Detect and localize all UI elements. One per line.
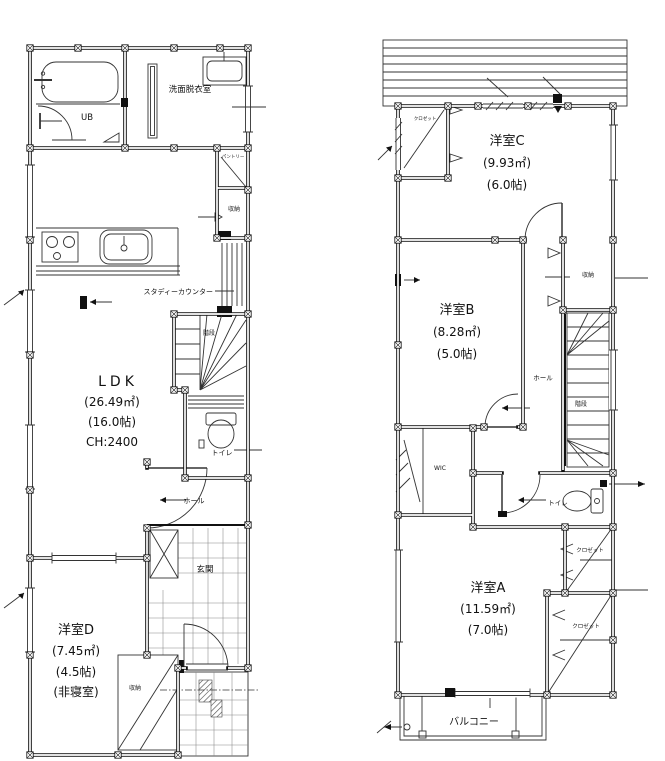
shoe-cabinet [150, 530, 178, 578]
floor1-plan: UB 洗面脱衣室 パントリー 収納 スタディーカウンター 階段 トイレ ホール … [4, 45, 266, 758]
wic-label: WIC [434, 465, 446, 472]
room-b-area-sqm: (8.28㎡) [433, 325, 481, 339]
floor2-plan: 洋室C (9.93㎡) (6.0帖) クロゼット 洋室B (8.28㎡) (5.… [377, 40, 648, 740]
room-b-label-block: 洋室B (8.28㎡) (5.0帖) [433, 302, 481, 361]
stairs-label-2f: 階段 [575, 400, 587, 408]
closet-c-label: クロゼット [414, 115, 437, 122]
floorplan-canvas: UB 洗面脱衣室 パントリー 収納 スタディーカウンター 階段 トイレ ホール … [0, 0, 665, 761]
bath-door-triangle [104, 133, 119, 142]
down-arrow [554, 106, 562, 113]
equipment-arrow [90, 299, 112, 305]
room-a-name: 洋室A [471, 580, 506, 596]
toilet-label-1f: トイレ [212, 449, 233, 457]
room-c-door [525, 203, 562, 240]
closet-a-upper [561, 528, 613, 592]
kitchen-counter [36, 228, 180, 275]
room-d-closet [118, 655, 178, 750]
roof-band [383, 40, 627, 106]
window [394, 550, 403, 642]
toilet-2f [498, 475, 645, 517]
wic-closet [396, 428, 423, 515]
entrance-label: 玄関 [196, 564, 213, 575]
ldk-ceiling-height: CH:2400 [86, 435, 138, 449]
stairs-label-1f: 階段 [203, 329, 215, 337]
hall-storage-label: 収納 [228, 205, 240, 213]
window [25, 290, 35, 352]
study-counter-label: スタディーカウンター [143, 287, 213, 296]
window [52, 553, 116, 564]
ub-label: UB [81, 113, 93, 123]
porch [160, 672, 258, 756]
window [25, 588, 35, 652]
wall-pillar-solid [121, 98, 128, 107]
study-counter [217, 231, 242, 317]
room-a-label-block: 洋室A (11.59㎡) (7.0帖) [460, 580, 516, 637]
toilet-label-2f: トイレ [548, 499, 568, 507]
room-c-label-block: 洋室C (9.93㎡) (6.0帖) [483, 133, 531, 192]
ldk-label-block: LDK (26.49㎡) (16.0帖) CH:2400 [84, 374, 140, 449]
closet-a-upper-label: クロゼット [576, 546, 604, 554]
staircase-1f [174, 314, 246, 390]
vanity-sink [203, 52, 246, 85]
washroom-label: 洗面脱衣室 [169, 84, 212, 95]
entrance-step [199, 680, 212, 702]
room-a-area-jo: (7.0帖) [468, 622, 508, 637]
storage-label-2f: 収納 [582, 271, 594, 279]
entrance-step-2 [211, 700, 222, 717]
window [609, 125, 618, 180]
hall-label-2f: ホール [533, 374, 553, 382]
room-d-note: (非寝室) [53, 684, 98, 699]
floor2-labels: 洋室C (9.93㎡) (6.0帖) クロゼット 洋室B (8.28㎡) (5.… [414, 115, 604, 728]
floor2-fixtures [377, 106, 648, 740]
closet-c-door-triangles [450, 106, 462, 162]
toilet-tank-2f [591, 489, 603, 513]
room-d-storage-label: 収納 [129, 684, 141, 692]
room-a-area-sqm: (11.59㎡) [460, 602, 516, 616]
ldk-name: LDK [98, 374, 138, 390]
room-c-area-jo: (6.0帖) [487, 177, 527, 192]
bath-door-arc [38, 106, 72, 140]
linen-cabinet [148, 64, 157, 138]
staircase-2f [565, 313, 610, 467]
room-d-area-sqm: (7.45㎡) [52, 644, 100, 658]
balcony-label: バルコニー [449, 716, 499, 728]
room-b-area-jo: (5.0帖) [437, 346, 477, 361]
bathtub [42, 62, 118, 102]
floorplan-page: UB 洗面脱衣室 パントリー 収納 スタディーカウンター 階段 トイレ ホール … [0, 0, 665, 761]
window [609, 350, 618, 410]
pantry-door-line [221, 157, 246, 187]
window [25, 425, 35, 489]
storage-2f-door-marks [545, 248, 648, 306]
room-c-name: 洋室C [489, 133, 524, 149]
wic-door-line [404, 440, 420, 502]
reference-arrows [4, 140, 86, 608]
wall-equipment-mark [80, 296, 87, 309]
ldk-area-sqm: (26.49㎡) [84, 395, 140, 409]
room-d-name: 洋室D [58, 622, 94, 638]
ldk-area-jo: (16.0帖) [88, 414, 136, 429]
bathtub-faucet-icon [34, 72, 52, 89]
toilet-bowl-icon [208, 420, 234, 448]
room-c-area-sqm: (9.93㎡) [483, 156, 531, 170]
window [394, 118, 403, 170]
wall-pillar-solid [553, 94, 562, 103]
closet-a-lower-label: クロゼット [572, 622, 600, 630]
entrance-tile-grid [147, 528, 246, 664]
room-b-name: 洋室B [440, 302, 475, 318]
hall-label-1f: ホール [184, 497, 205, 505]
room-d-area-jo: (4.5帖) [56, 664, 96, 679]
window [243, 86, 253, 132]
front-door [179, 624, 228, 673]
shower-faucet-icon [40, 113, 62, 129]
pantry-label: パントリー [222, 154, 245, 160]
room-d-label-block: 洋室D (7.45㎡) (4.5帖) (非寝室) [52, 622, 100, 699]
closet-a-lower [548, 594, 613, 693]
window [483, 102, 523, 111]
wall-pillar-solid [445, 688, 455, 697]
toilet-tank [206, 413, 236, 425]
window [455, 689, 530, 698]
toilet-1f [188, 396, 244, 448]
window [25, 165, 35, 237]
